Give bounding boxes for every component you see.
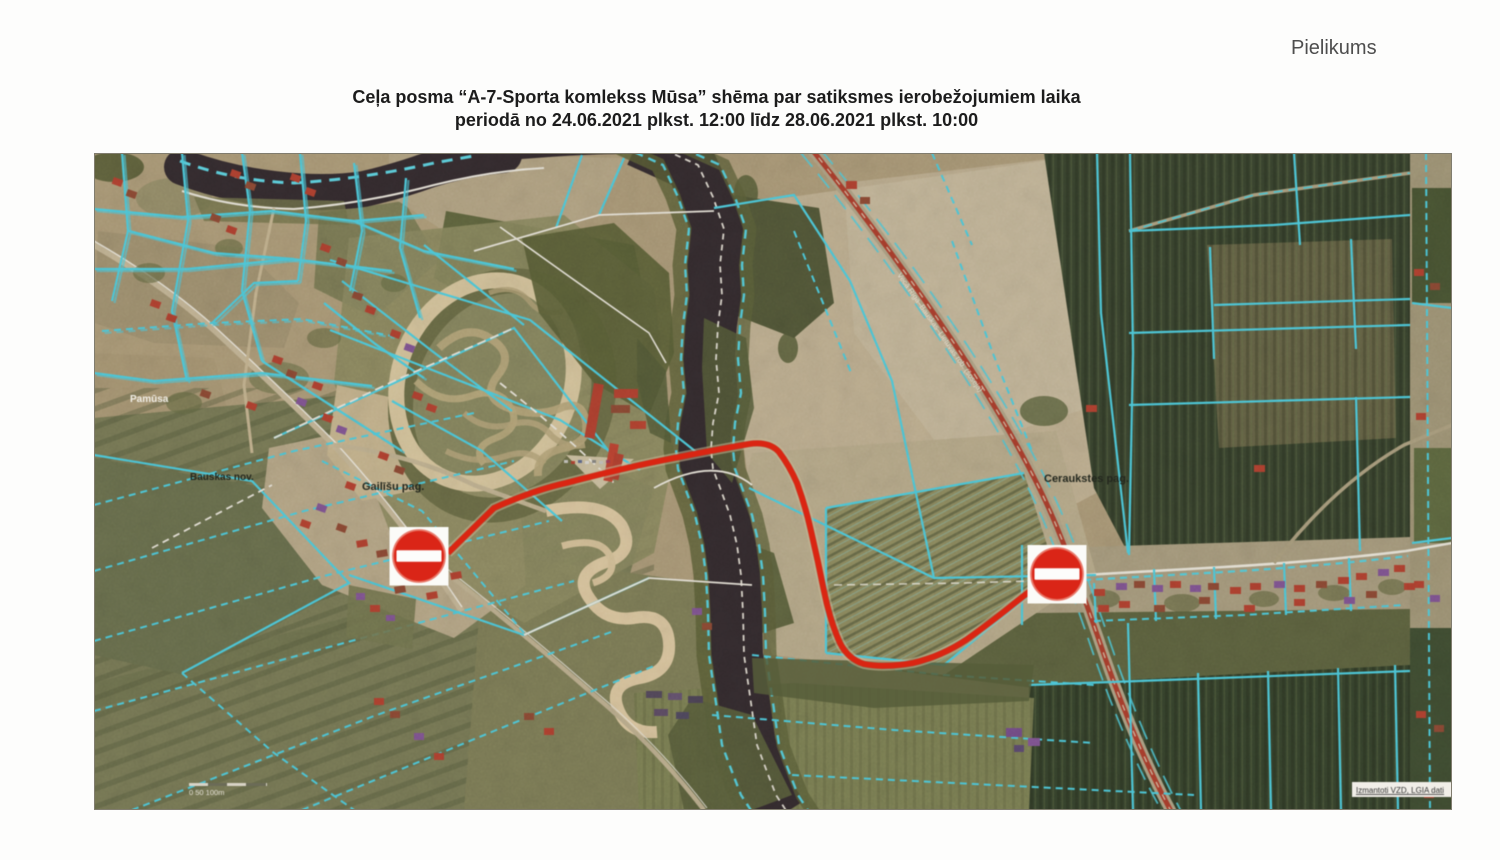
svg-text:Pamūsa: Pamūsa bbox=[130, 394, 169, 405]
svg-text:Ceraukstes pag.: Ceraukstes pag. bbox=[1044, 473, 1129, 485]
svg-text:Gailīšu pag.: Gailīšu pag. bbox=[362, 481, 424, 493]
svg-text:Izmantoti VZD, LGIA dati: Izmantoti VZD, LGIA dati bbox=[1356, 786, 1444, 795]
svg-text:Bauskas nov.: Bauskas nov. bbox=[190, 472, 254, 483]
svg-text:0 50 100m: 0 50 100m bbox=[189, 788, 224, 797]
